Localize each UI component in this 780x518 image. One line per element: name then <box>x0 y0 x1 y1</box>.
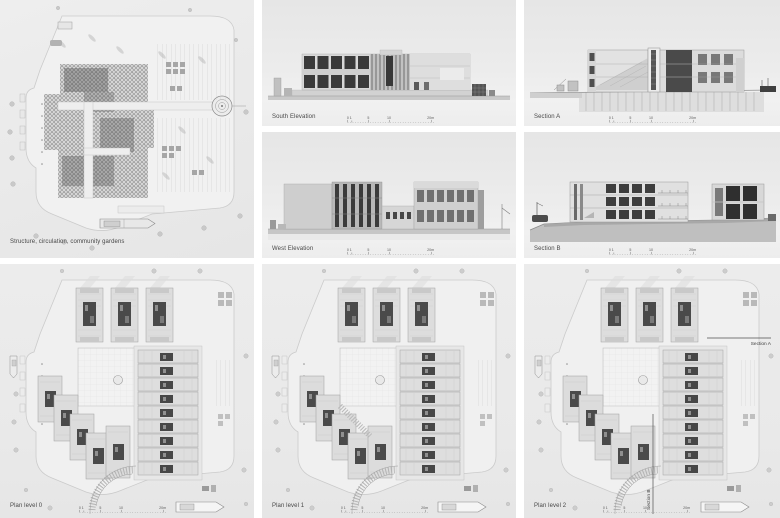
panel-plan-level-2: Section A Section B Plan level 2 0 1 5 1… <box>524 264 780 518</box>
west-elevation-label: West Elevation <box>272 246 313 253</box>
plan-level-1-drawing <box>262 264 516 518</box>
section-b-drawing <box>524 132 780 258</box>
svg-text:10: 10 <box>649 248 653 252</box>
structure-grid <box>44 64 154 198</box>
svg-text:20m: 20m <box>421 506 428 510</box>
section-left-block <box>588 50 648 92</box>
svg-text:5: 5 <box>629 116 631 120</box>
section-column: Section A 0 1 5 10 20m <box>524 0 780 258</box>
axonometric-label: Structure, circulation, community garden… <box>10 239 124 246</box>
svg-text:5: 5 <box>623 506 625 510</box>
panel-plan-level-0: Plan level 0 0 1 5 10 20m <box>0 264 254 518</box>
harbor-bits <box>270 220 286 229</box>
svg-text:5: 5 <box>367 248 369 252</box>
svg-text:10: 10 <box>649 116 653 120</box>
light-wing <box>410 54 470 90</box>
scale-bar-slot: 0 1 5 10 20m <box>608 244 700 256</box>
scale-bar-slot: 0 1 5 10 20m <box>608 112 700 124</box>
svg-text:0 1: 0 1 <box>609 248 614 252</box>
panel-west-elevation: West Elevation 0 1 5 10 20m <box>262 132 516 258</box>
silo <box>274 78 292 96</box>
svg-text:20m: 20m <box>427 116 434 120</box>
dock-boat-icon <box>760 78 776 92</box>
main-section-block <box>570 182 688 222</box>
svg-text:5: 5 <box>99 506 101 510</box>
svg-text:0 1: 0 1 <box>347 248 352 252</box>
section-a-drawing <box>524 0 780 126</box>
panel-axonometric: Structure, circulation, community garden… <box>0 0 254 258</box>
plan-level-2-label: Plan level 2 <box>534 503 566 510</box>
svg-text:0 1: 0 1 <box>609 116 614 120</box>
slatted-midsection <box>370 50 410 90</box>
svg-text:0 1: 0 1 <box>79 506 84 510</box>
south-elevation-label: South Elevation <box>272 114 316 121</box>
scale-bar: 0 1 5 10 20m <box>608 113 700 125</box>
section-b-label: Section B <box>534 246 561 253</box>
svg-text:20m: 20m <box>689 116 696 120</box>
section-right-block <box>660 50 744 92</box>
crane-icon <box>502 204 510 229</box>
scale-bar-slot: 0 1 5 10 20m <box>602 502 694 514</box>
plan-level-0-drawing <box>0 264 254 518</box>
panel-section-b: Section B 0 1 5 10 20m <box>524 132 780 258</box>
plan-level-0-label: Plan level 0 <box>10 503 42 510</box>
svg-text:0 1: 0 1 <box>347 116 352 120</box>
dark-strip-block <box>332 182 382 229</box>
svg-text:20m: 20m <box>683 506 690 510</box>
svg-text:20m: 20m <box>159 506 166 510</box>
scale-bar: 0 1 5 10 20m <box>602 503 694 515</box>
panel-plan-level-1: Plan level 1 0 1 5 10 20m <box>262 264 516 518</box>
svg-text:Section A: Section A <box>751 341 772 347</box>
plan-level-2-drawing: Section A Section B <box>524 264 780 518</box>
elevation-column: South Elevation 0 1 5 10 20m <box>262 0 516 258</box>
presentation-board: Structure, circulation, community garden… <box>0 0 780 518</box>
svg-text:10: 10 <box>119 506 123 510</box>
window-grid-block <box>414 182 484 229</box>
scale-bar: 0 1 5 10 20m <box>340 503 432 515</box>
axonometric-drawing <box>0 0 254 258</box>
lift-shaft <box>648 48 660 92</box>
scale-bar: 0 1 5 10 20m <box>346 113 438 125</box>
svg-text:20m: 20m <box>689 248 696 252</box>
west-elevation-drawing <box>262 132 516 258</box>
low-link <box>382 206 414 229</box>
scale-bar-slot: 0 1 5 10 20m <box>78 502 170 514</box>
scale-bar-slot: 0 1 5 10 20m <box>340 502 432 514</box>
scale-bar: 0 1 5 10 20m <box>608 245 700 257</box>
svg-text:0 1: 0 1 <box>341 506 346 510</box>
svg-text:10: 10 <box>381 506 385 510</box>
panel-section-a: Section A 0 1 5 10 20m <box>524 0 780 126</box>
south-elevation-drawing <box>262 0 516 126</box>
svg-text:10: 10 <box>387 248 391 252</box>
utility-box <box>768 214 776 221</box>
section-a-label: Section A <box>534 114 560 121</box>
panel-south-elevation: South Elevation 0 1 5 10 20m <box>262 0 516 126</box>
plan-level-1-label: Plan level 1 <box>272 503 304 510</box>
left-quay-bits <box>554 79 578 91</box>
svg-text:10: 10 <box>643 506 647 510</box>
dock-teeth <box>20 94 25 150</box>
scale-bar-slot: 0 1 5 10 20m <box>346 112 438 124</box>
svg-text:5: 5 <box>367 116 369 120</box>
svg-text:5: 5 <box>629 248 631 252</box>
svg-text:10: 10 <box>387 116 391 120</box>
left-boat-icon <box>532 202 548 222</box>
scale-bar-slot: 0 1 5 10 20m <box>346 244 438 256</box>
right-section-block <box>712 184 764 220</box>
scale-bar: 0 1 5 10 20m <box>78 503 170 515</box>
scale-bar: 0 1 5 10 20m <box>346 245 438 257</box>
svg-text:0 1: 0 1 <box>603 506 608 510</box>
svg-text:5: 5 <box>361 506 363 510</box>
equipment-box <box>472 84 495 96</box>
svg-text:20m: 20m <box>427 248 434 252</box>
